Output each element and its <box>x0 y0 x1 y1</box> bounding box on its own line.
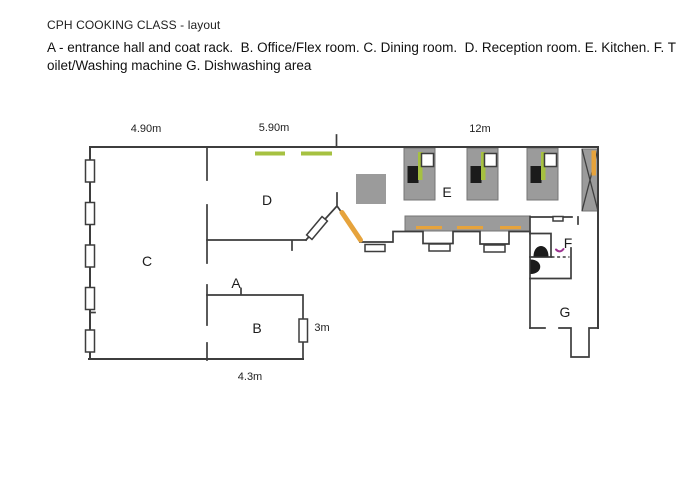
sink-basin-icon <box>556 249 564 251</box>
stove-icon <box>408 166 419 183</box>
window-room-b <box>299 319 308 342</box>
floorplan-page: CPH COOKING CLASS - layout A - entrance … <box>0 0 680 480</box>
shaft-strip <box>592 151 597 176</box>
wall-shelf-strip-2 <box>301 152 332 156</box>
dim-kitchen-width: 12m <box>469 123 490 135</box>
window-left-1 <box>86 160 95 182</box>
toilet-icon-1 <box>534 246 549 257</box>
dim-c-width: 4.90m <box>131 123 162 135</box>
floorplan-drawing <box>0 0 680 480</box>
door-leaf <box>307 217 328 240</box>
side-table-1 <box>365 245 385 252</box>
room-label-a: A <box>231 275 240 291</box>
window-left-4 <box>86 288 95 310</box>
kitchen-station-3 <box>527 148 558 200</box>
stove-icon <box>531 166 542 183</box>
room-label-c: C <box>142 253 152 269</box>
outer-walls <box>89 147 598 359</box>
side-table-2 <box>429 244 450 251</box>
wall-kitchen-step <box>360 232 530 245</box>
toilet-icon-2 <box>531 260 541 275</box>
counter-strip-1 <box>416 226 442 229</box>
square-table-fixture <box>356 174 386 204</box>
diagonal-orange-strip <box>342 213 361 241</box>
sink-icon <box>545 154 557 167</box>
stair-shaft <box>582 149 598 211</box>
door-marker-f <box>553 217 563 222</box>
wall-room-g <box>530 328 598 357</box>
sink-icon <box>485 154 497 167</box>
room-label-e: E <box>442 184 451 200</box>
wall-shelf-strip-1 <box>255 152 285 156</box>
dim-d-width: 5.90m <box>259 122 290 134</box>
kitchen-counter <box>405 216 530 231</box>
wall-d-bottom <box>207 240 306 250</box>
window-left-5 <box>86 330 95 352</box>
window-left-2 <box>86 203 95 225</box>
window-left-3 <box>86 245 95 267</box>
side-table-3 <box>484 245 505 252</box>
kitchen-station-2 <box>467 148 498 200</box>
sink-icon <box>422 154 434 167</box>
room-label-d: D <box>262 192 272 208</box>
room-label-g: G <box>560 304 571 320</box>
counter-strip-2 <box>457 226 483 229</box>
counter-strip-3 <box>500 226 521 229</box>
dim-b-width: 4.3m <box>238 371 262 383</box>
room-label-f: F <box>564 235 573 251</box>
stove-icon <box>471 166 482 183</box>
room-label-b: B <box>252 320 261 336</box>
kitchen-station-1 <box>404 148 435 200</box>
dim-b-height: 3m <box>314 322 329 334</box>
